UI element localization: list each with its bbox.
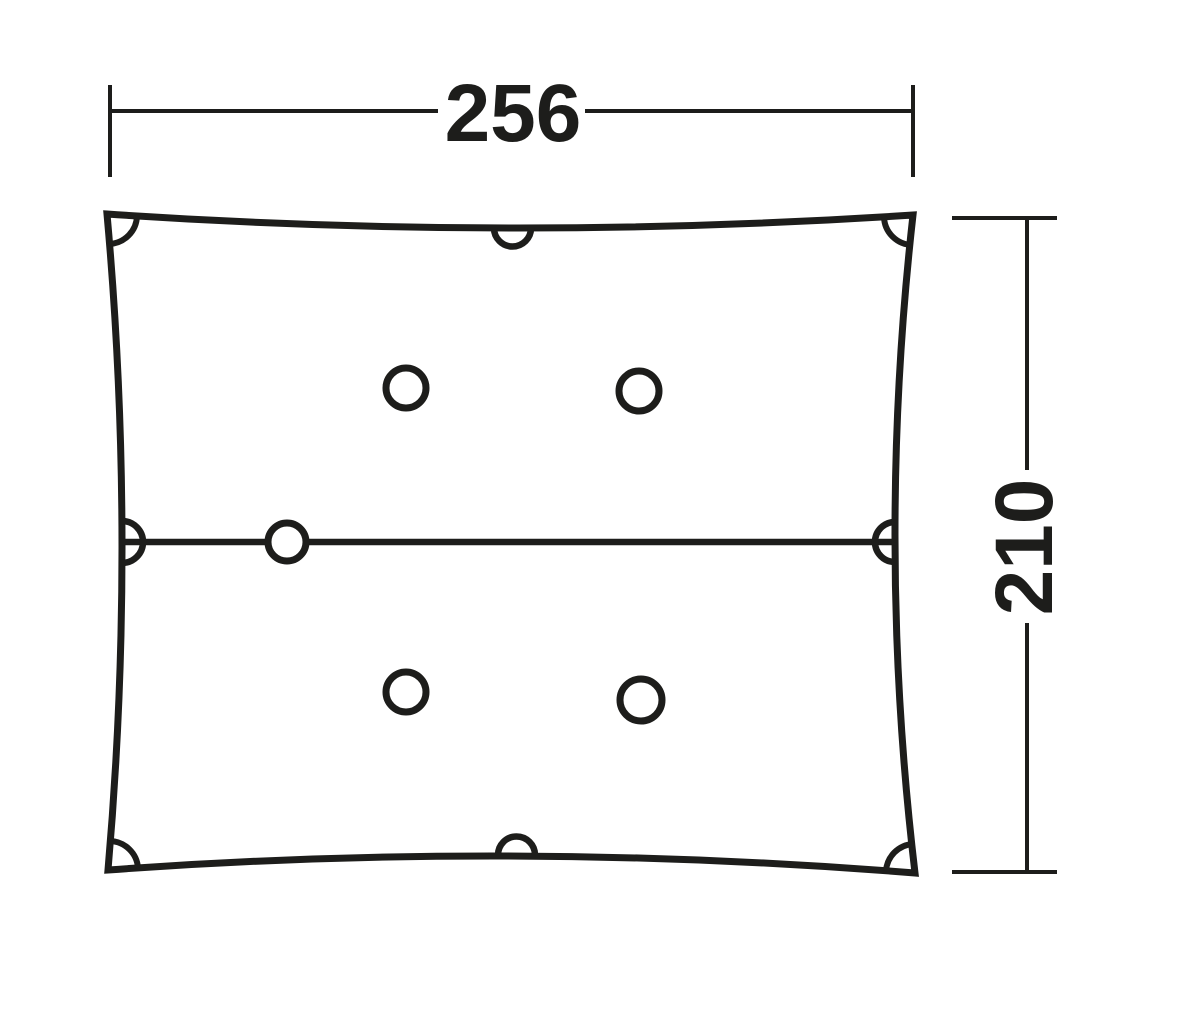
inner-ring-bottom-left-icon xyxy=(386,672,426,712)
inner-ring-bottom-right-icon xyxy=(620,679,662,721)
tarp-dimension-diagram: 256 210 xyxy=(0,0,1200,1011)
width-dim-value: 256 xyxy=(445,68,582,159)
height-dimension: 210 xyxy=(952,218,1070,872)
drawing-canvas: 256 210 xyxy=(0,0,1200,1011)
inner-ring-seam-icon xyxy=(268,523,306,561)
inner-ring-top-right-icon xyxy=(619,371,659,411)
width-dimension: 256 xyxy=(110,68,913,177)
height-dim-value: 210 xyxy=(979,479,1070,616)
inner-ring-top-left-icon xyxy=(386,368,426,408)
